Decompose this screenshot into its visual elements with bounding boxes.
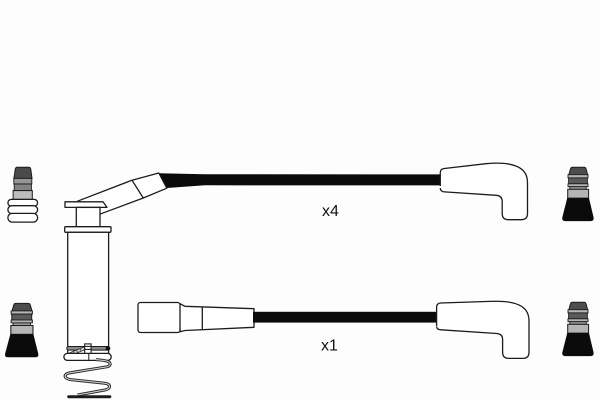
svg-text:x4: x4 [322,203,339,220]
svg-text:x1: x1 [321,338,338,355]
